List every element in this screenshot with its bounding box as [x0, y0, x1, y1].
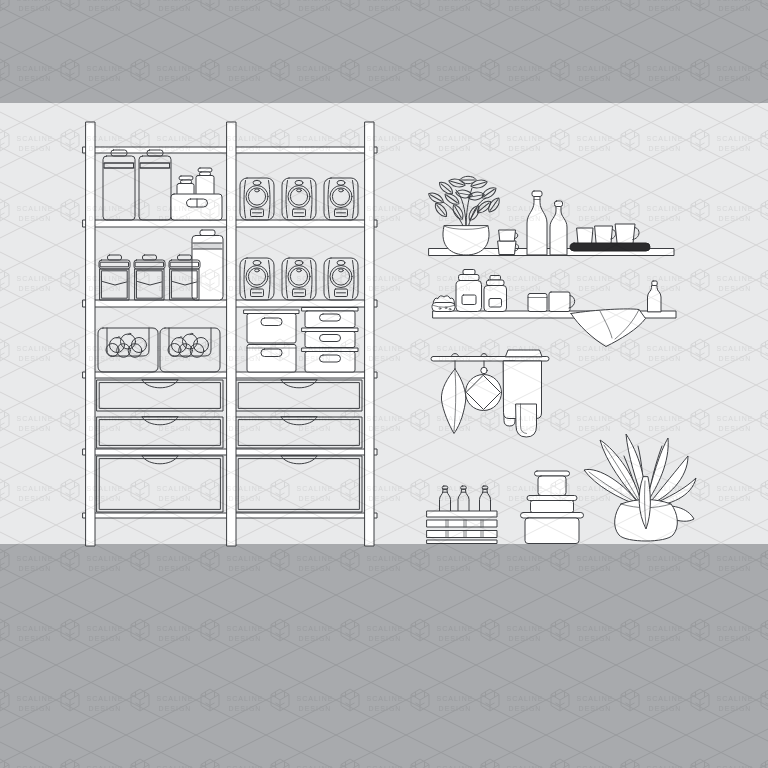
watermark-overlay — [0, 0, 768, 768]
pantry-line-art: SCALINE DESIGN — [0, 0, 768, 768]
watermarked-illustration-canvas: SCALINE DESIGN — [0, 0, 768, 768]
